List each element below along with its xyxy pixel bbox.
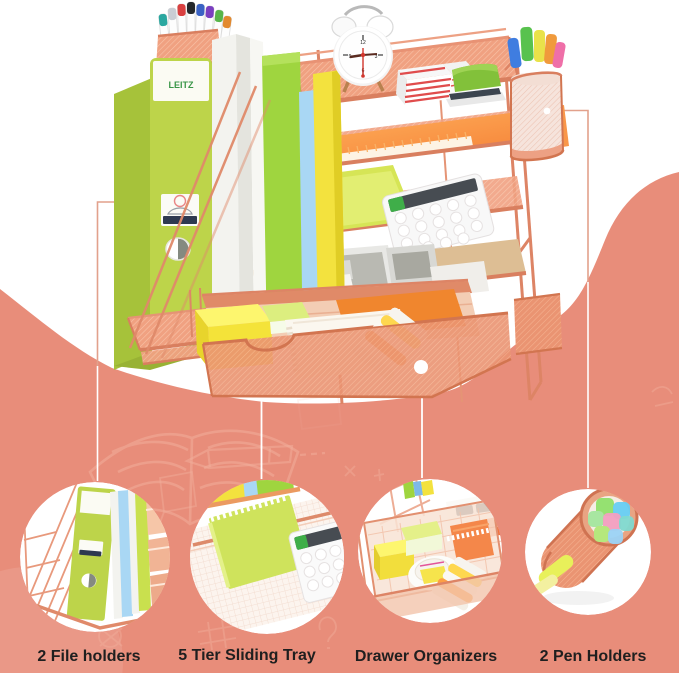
svg-text:2 Pen Holders: 2 Pen Holders <box>540 648 647 665</box>
svg-text:12: 12 <box>360 40 366 46</box>
svg-text:5 Tier Sliding Tray: 5 Tier Sliding Tray <box>178 647 316 664</box>
svg-text:LEITZ: LEITZ <box>169 80 194 90</box>
svg-text:Drawer Organizers: Drawer Organizers <box>355 648 497 665</box>
svg-text:2 File holders: 2 File holders <box>37 648 140 665</box>
